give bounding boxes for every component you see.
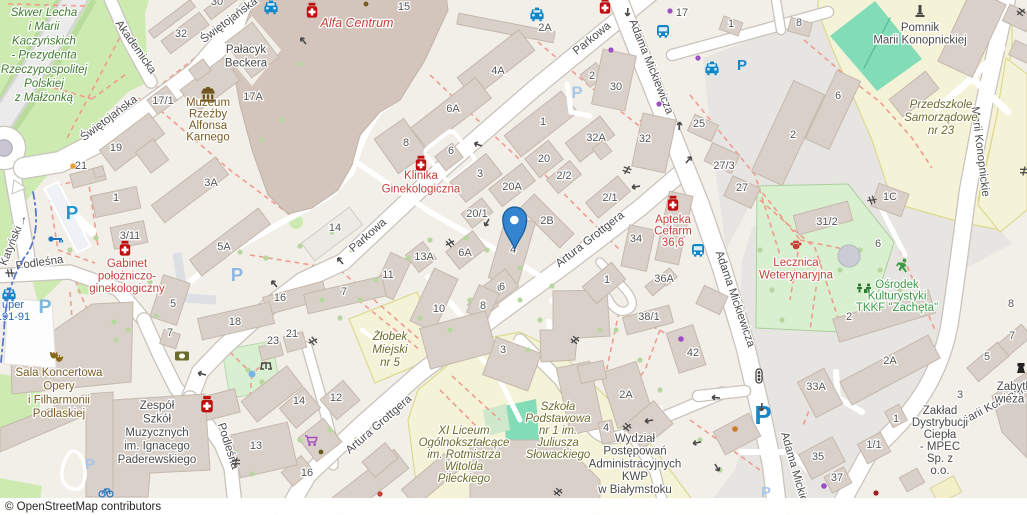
svg-text:8: 8 (480, 300, 486, 312)
svg-text:2B: 2B (540, 215, 553, 227)
svg-text:32: 32 (639, 133, 651, 145)
svg-text:21: 21 (286, 328, 298, 340)
svg-text:P: P (231, 264, 244, 285)
svg-text:30: 30 (211, 0, 223, 8)
svg-text:16: 16 (274, 292, 286, 304)
svg-text:14: 14 (293, 395, 305, 407)
svg-text:PałacykBeckera: PałacykBeckera (225, 44, 268, 70)
svg-text:12: 12 (330, 392, 342, 404)
svg-text:3A: 3A (204, 177, 218, 189)
svg-text:5A: 5A (217, 241, 231, 253)
svg-text:6: 6 (448, 145, 454, 157)
svg-text:2: 2 (846, 311, 852, 323)
svg-text:32: 32 (175, 28, 187, 40)
svg-text:8: 8 (1008, 298, 1014, 310)
svg-text:P: P (38, 296, 51, 318)
svg-text:P: P (737, 57, 747, 74)
svg-text:17A: 17A (243, 91, 263, 103)
svg-text:2: 2 (589, 70, 595, 82)
svg-text:MuzeumRzeźbyAlfonsaKarnego: MuzeumRzeźbyAlfonsaKarnego (186, 97, 230, 144)
svg-text:2/1: 2/1 (602, 192, 617, 204)
svg-text:1: 1 (728, 18, 734, 30)
svg-text:1: 1 (540, 116, 546, 128)
svg-text:13: 13 (250, 440, 262, 452)
svg-text:27/3: 27/3 (713, 160, 734, 172)
svg-text:35: 35 (812, 451, 824, 463)
svg-text:27: 27 (736, 182, 748, 194)
svg-text:30: 30 (610, 81, 622, 93)
svg-text:5: 5 (984, 351, 990, 363)
svg-text:3/11: 3/11 (120, 230, 141, 242)
svg-text:P: P (754, 402, 771, 430)
svg-text:P: P (571, 84, 582, 102)
svg-text:33A: 33A (806, 381, 826, 393)
svg-text:3: 3 (500, 344, 506, 356)
svg-text:1: 1 (113, 192, 119, 204)
svg-text:5: 5 (170, 298, 176, 310)
svg-text:14: 14 (329, 222, 341, 234)
svg-text:15: 15 (398, 1, 410, 13)
svg-text:3: 3 (957, 389, 963, 401)
svg-text:Alfa Centrum: Alfa Centrum (320, 16, 394, 30)
svg-text:18: 18 (229, 316, 241, 328)
svg-text:38/1: 38/1 (638, 311, 659, 323)
svg-text:6: 6 (499, 281, 505, 293)
svg-text:1: 1 (604, 274, 610, 286)
svg-text:2/2: 2/2 (556, 170, 571, 182)
svg-text:2A: 2A (619, 389, 633, 401)
svg-text:1/1: 1/1 (866, 439, 881, 451)
svg-text:6A: 6A (458, 247, 472, 259)
svg-text:36A: 36A (654, 273, 674, 285)
svg-text:4A: 4A (491, 65, 505, 77)
svg-text:2A: 2A (538, 22, 552, 34)
svg-text:37: 37 (831, 472, 843, 484)
svg-text:20/1: 20/1 (466, 208, 487, 220)
svg-text:17/1: 17/1 (152, 95, 173, 107)
svg-text:42: 42 (687, 347, 699, 359)
svg-text:6: 6 (835, 90, 841, 102)
svg-text:8: 8 (403, 137, 409, 149)
svg-text:1C: 1C (883, 191, 897, 203)
svg-text:Zabytkwieża c: Zabytkwieża c (994, 381, 1027, 406)
svg-text:7: 7 (341, 286, 347, 298)
svg-text:20: 20 (538, 153, 550, 165)
svg-text:10: 10 (433, 303, 445, 315)
svg-text:8: 8 (796, 17, 802, 29)
svg-text:P: P (85, 456, 95, 473)
svg-text:19: 19 (110, 142, 122, 154)
svg-text:2A: 2A (883, 355, 897, 367)
svg-text:6A: 6A (446, 103, 460, 115)
svg-text:P: P (66, 202, 79, 223)
svg-text:11: 11 (382, 269, 393, 281)
svg-text:25: 25 (693, 118, 705, 130)
svg-text:4: 4 (603, 422, 609, 434)
svg-text:3: 3 (477, 168, 483, 180)
svg-text:32A: 32A (586, 132, 606, 144)
svg-text:21: 21 (75, 160, 87, 172)
svg-text:© OpenStreetMap contributors: © OpenStreetMap contributors (5, 501, 161, 513)
svg-text:6: 6 (875, 238, 881, 250)
svg-text:17: 17 (676, 7, 688, 19)
svg-text:13A: 13A (414, 251, 434, 263)
svg-text:1: 1 (893, 413, 899, 425)
svg-text:2: 2 (790, 129, 796, 141)
svg-text:20A: 20A (502, 181, 522, 193)
svg-text:23: 23 (267, 335, 279, 347)
svg-text:16: 16 (301, 467, 313, 479)
svg-text:34: 34 (630, 233, 642, 245)
svg-text:7: 7 (167, 327, 173, 339)
svg-text:7: 7 (1009, 330, 1015, 342)
svg-text:31/2: 31/2 (816, 216, 837, 228)
